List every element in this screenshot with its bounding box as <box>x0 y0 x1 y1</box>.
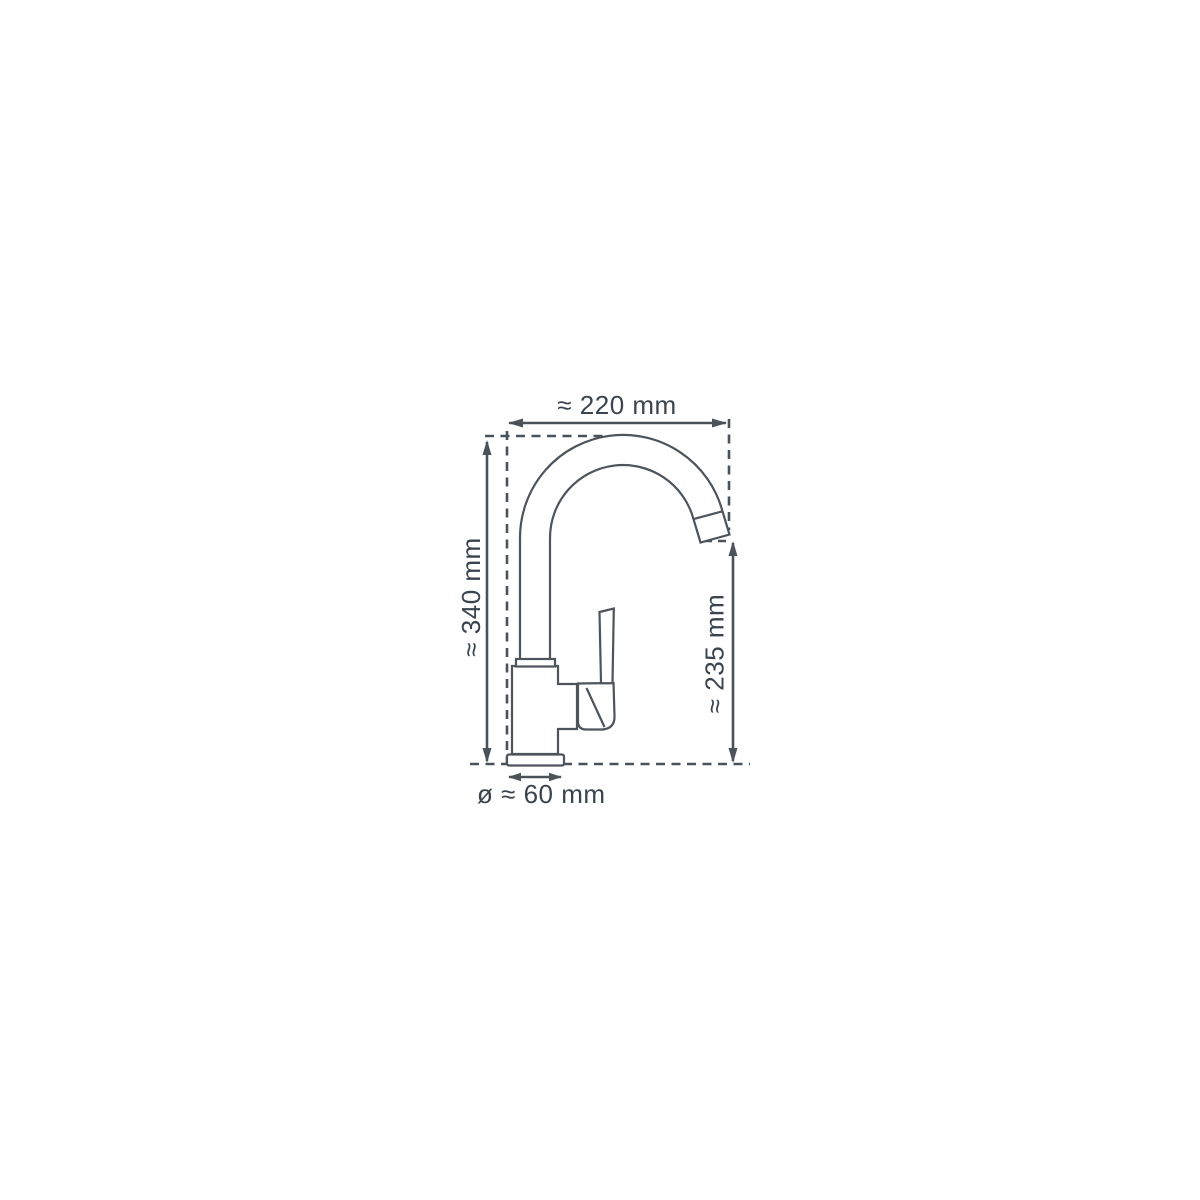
dimension-base-diameter: ø ≈ 60 mm <box>477 773 606 809</box>
faucet-collar <box>516 659 555 667</box>
technical-drawing-page: ≈ 220 mm ≈ 340 mm ≈ 235 mm ø ≈ 60 mm <box>0 0 1200 1200</box>
faucet-spout-path <box>520 435 730 661</box>
arrowhead-up-icon <box>729 541 738 556</box>
base-flange <box>507 755 564 766</box>
faucet-outline <box>507 435 730 766</box>
handle-hub <box>578 683 615 730</box>
handle-lever <box>600 609 614 684</box>
arrowhead-down-icon <box>729 748 738 763</box>
dimension-spout-width: ≈ 220 mm <box>508 390 727 428</box>
arrowhead-up-icon <box>483 440 492 455</box>
faucet-dimension-diagram: ≈ 220 mm ≈ 340 mm ≈ 235 mm ø ≈ 60 mm <box>0 0 1200 1200</box>
arrowhead-right-icon <box>712 419 727 428</box>
dimension-label-base-diameter: ø ≈ 60 mm <box>477 779 606 809</box>
dimension-total-height: ≈ 340 mm <box>456 440 492 763</box>
faucet-body <box>512 666 577 754</box>
dimension-label-spout-width: ≈ 220 mm <box>557 390 676 420</box>
arrowhead-left-icon <box>508 419 523 428</box>
arrowhead-down-icon <box>483 748 492 763</box>
dimension-label-total-height: ≈ 340 mm <box>456 537 486 656</box>
dimension-label-outlet-height: ≈ 235 mm <box>700 594 730 713</box>
dimension-outlet-height: ≈ 235 mm <box>700 541 738 763</box>
